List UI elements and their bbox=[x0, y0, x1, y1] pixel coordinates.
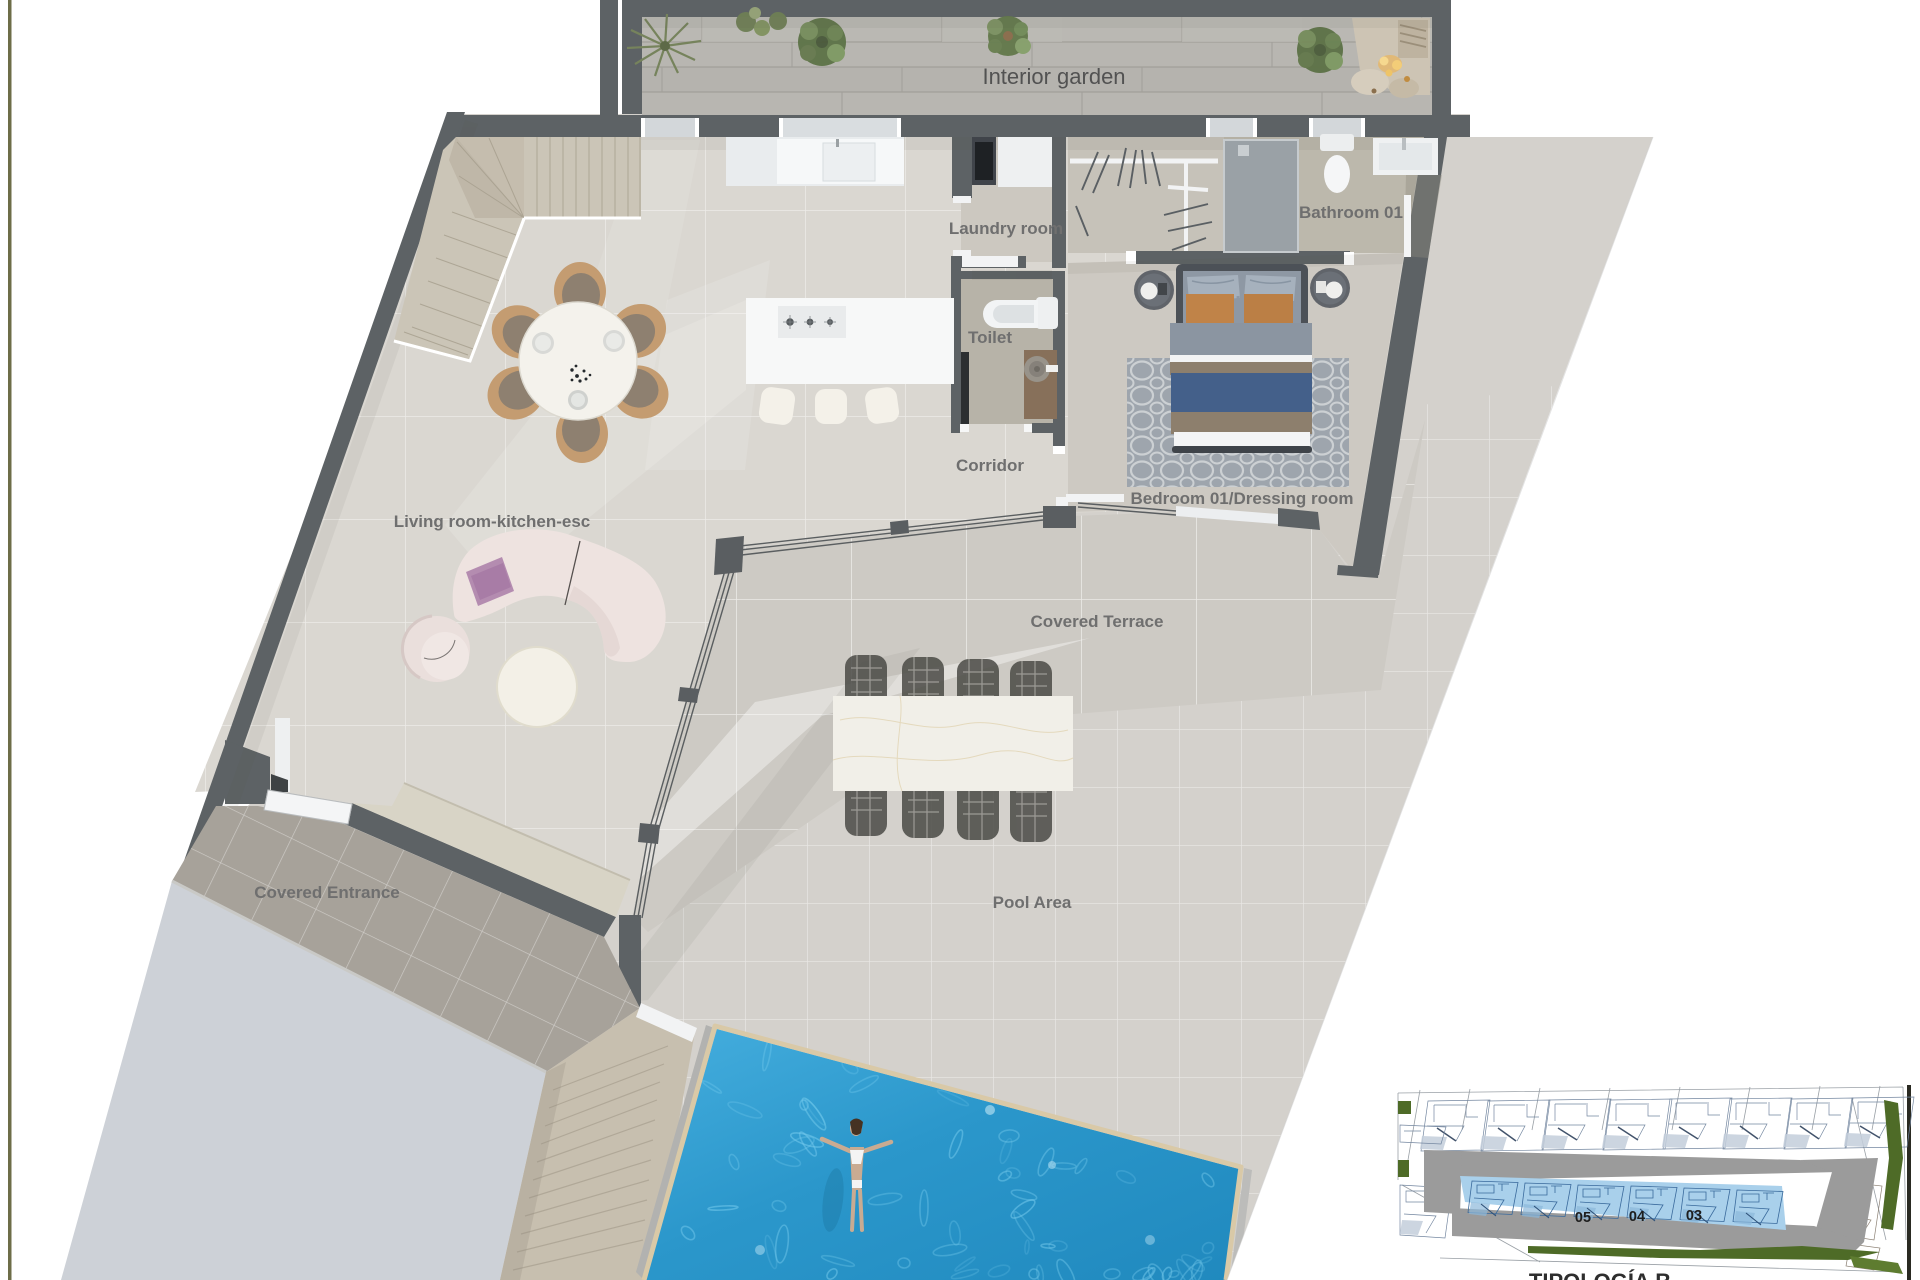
svg-text:Covered Entrance: Covered Entrance bbox=[254, 883, 400, 902]
svg-text:Laundry room: Laundry room bbox=[949, 219, 1063, 238]
svg-text:Corridor: Corridor bbox=[956, 456, 1024, 475]
svg-text:04: 04 bbox=[1629, 1209, 1645, 1225]
svg-text:Bathroom 01: Bathroom 01 bbox=[1299, 203, 1403, 222]
svg-text:Covered Terrace: Covered Terrace bbox=[1031, 612, 1164, 631]
svg-text:03: 03 bbox=[1686, 1208, 1702, 1224]
svg-text:Toilet: Toilet bbox=[968, 328, 1012, 347]
svg-text:Living room-kitchen-esc: Living room-kitchen-esc bbox=[394, 512, 590, 531]
svg-text:05: 05 bbox=[1575, 1210, 1591, 1226]
svg-text:Pool Area: Pool Area bbox=[993, 893, 1072, 912]
svg-text:TIPOLOGÍA B: TIPOLOGÍA B bbox=[1529, 1269, 1671, 1280]
svg-text:Interior garden: Interior garden bbox=[982, 64, 1125, 89]
svg-text:Bedroom 01/Dressing room: Bedroom 01/Dressing room bbox=[1131, 489, 1354, 508]
